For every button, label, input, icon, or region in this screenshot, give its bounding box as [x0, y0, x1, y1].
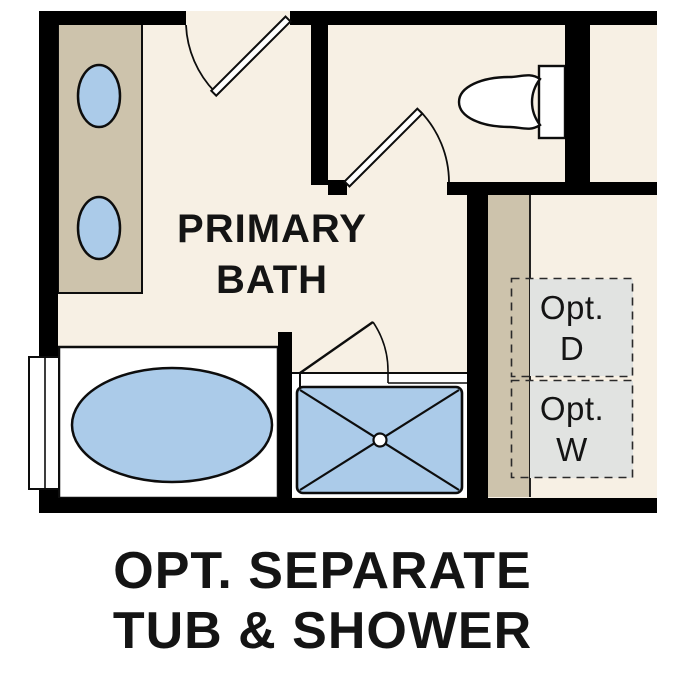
shower-drain: [374, 434, 387, 447]
opt-dryer-line1: Opt.: [540, 287, 604, 328]
room-label-line2: BATH: [150, 255, 394, 306]
wall-tub-shower-divider: [278, 332, 292, 498]
opt-dryer-line2: D: [560, 328, 584, 369]
floor-plan-page: PRIMARY BATH Opt. D Opt. W OPT. SEPARATE…: [0, 0, 687, 687]
room-label-line1: PRIMARY: [150, 204, 394, 255]
tub-area: [59, 347, 278, 498]
wall-toilet-partition: [311, 25, 328, 185]
opt-dryer-label: Opt. D: [511, 278, 633, 377]
wall-left-upper: [39, 11, 58, 357]
toilet-tank: [539, 66, 565, 138]
plan-caption-line2: TUB & SHOWER: [0, 601, 645, 661]
plan-caption-line1: OPT. SEPARATE: [0, 541, 645, 601]
window-frame: [29, 357, 59, 489]
plan-caption: OPT. SEPARATE TUB & SHOWER: [0, 541, 645, 661]
sink-basin-top: [78, 65, 120, 127]
sink-basin-bottom: [78, 197, 120, 259]
room-label: PRIMARY BATH: [150, 204, 394, 306]
window: [29, 357, 59, 489]
wall-top-left: [39, 11, 186, 25]
wall-closet-left: [467, 182, 488, 500]
opt-washer-line1: Opt.: [540, 388, 604, 429]
wall-bottom: [39, 498, 657, 513]
vanity: [58, 24, 142, 293]
wall-toilet-right: [565, 25, 590, 182]
bathtub: [72, 368, 272, 482]
opt-washer-label: Opt. W: [511, 380, 633, 478]
wall-top-right: [290, 11, 657, 25]
opt-washer-line2: W: [556, 429, 588, 470]
